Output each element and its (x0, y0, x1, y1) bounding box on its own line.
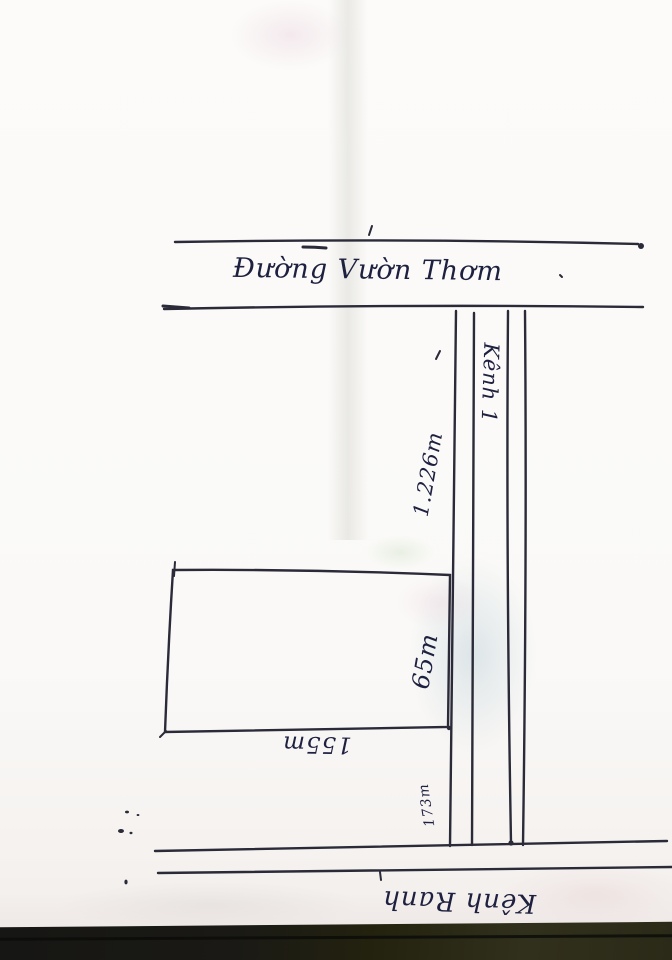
bottom-road-lower-line (158, 867, 672, 873)
ink-speck (118, 829, 124, 833)
ink-blob-canal-end (508, 840, 513, 845)
ink-blob-plot-br (447, 726, 451, 730)
ink-tick-mark (436, 351, 440, 359)
plot-bottom-dimension-label: 155m (282, 730, 352, 757)
ink-tick-mark (380, 872, 381, 880)
ink-blob-arrow-end (638, 243, 644, 249)
canal-line-4 (523, 311, 526, 845)
plot-corner-spur-tl (174, 562, 175, 576)
ink-speck (125, 811, 129, 814)
photo-bottom-edge (0, 921, 672, 960)
top-road-lower-line (164, 306, 643, 309)
ink-speck (124, 880, 127, 885)
ink-speck (130, 832, 133, 834)
top-road-label: Đường Vườn Thơm (233, 253, 503, 287)
top-road-lower-overdraw (163, 306, 189, 308)
canal-line-3 (507, 311, 511, 843)
ink-tick-mark (369, 226, 372, 235)
sketch-ink-layer (0, 0, 672, 960)
top-road-upper-overdraw (303, 247, 326, 248)
top-road-upper-line (175, 240, 638, 244)
ink-speck (137, 814, 140, 816)
bottom-road-label: Kênh Ranh (382, 884, 537, 918)
canal-line-2 (472, 313, 474, 845)
bottom-road-upper-line (155, 841, 667, 851)
plot-corner-spur-bl (160, 731, 166, 737)
plot-outline (165, 570, 450, 732)
canal-label: Kênh 1 (477, 342, 504, 423)
ink-tick-mark (560, 275, 562, 277)
